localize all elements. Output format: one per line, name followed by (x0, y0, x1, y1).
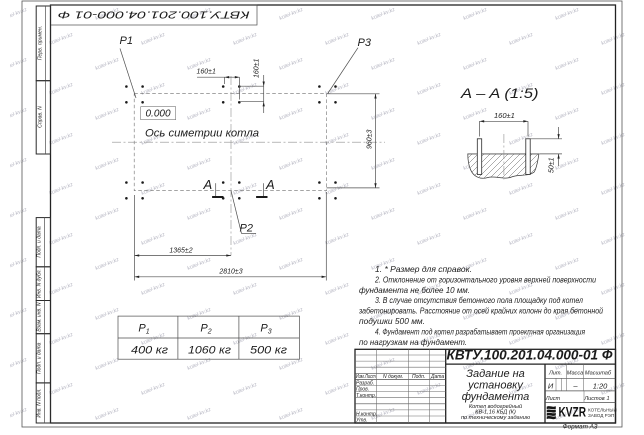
svg-text:160±1: 160±1 (254, 58, 261, 78)
svg-text:по техническому заданию: по техническому заданию (461, 415, 531, 421)
svg-text:Разраб.: Разраб. (356, 381, 374, 387)
svg-text:400 кг: 400 кг (131, 345, 169, 357)
svg-text:Листов: Листов (583, 396, 604, 402)
svg-text:Утв.: Утв. (356, 417, 367, 423)
svg-text:500 кг: 500 кг (250, 345, 288, 357)
svg-text:Ось симетрии котла: Ось симетрии котла (145, 128, 259, 140)
svg-text:Лист: Лист (545, 396, 561, 402)
svg-text:Подп. и дата: Подп. и дата (37, 226, 43, 258)
svg-text:A: A (265, 177, 275, 192)
svg-text:установку: установку (467, 380, 524, 392)
svg-text:Изм.Лист: Изм.Лист (356, 374, 376, 380)
svg-text:Справ. N: Справ. N (38, 106, 44, 128)
svg-text:подушки 500 мм.: подушки 500 мм. (359, 316, 425, 326)
svg-text:1: 1 (606, 396, 609, 402)
svg-text:Подп. и дата: Подп. и дата (37, 342, 43, 374)
svg-text:Пров.: Пров. (356, 387, 369, 393)
svg-text:Масса: Масса (567, 371, 584, 377)
svg-text:50±1: 50±1 (549, 157, 556, 173)
svg-text:Формат А3: Формат А3 (563, 424, 598, 430)
svg-text:1365±2: 1365±2 (169, 248, 192, 255)
svg-text:Перв. примен.: Перв. примен. (38, 26, 44, 60)
svg-text:Подп.: Подп. (412, 374, 425, 380)
svg-text:P1: P1 (120, 35, 133, 47)
svg-text:960±3: 960±3 (367, 129, 374, 149)
svg-text:–: – (572, 381, 578, 390)
svg-text:забетонировать. Расстояние от: забетонировать. Расстояние от осей крайн… (358, 306, 603, 316)
svg-text:Взам. инв. N: Взам. инв. N (37, 302, 43, 332)
svg-text:ЗАВОД РЭП: ЗАВОД РЭП (588, 413, 614, 418)
svg-text:3. В случае отсутствия бетонно: 3. В случае отсутствия бетонного пола пл… (375, 295, 583, 305)
svg-text:Т.контр.: Т.контр. (356, 393, 376, 399)
svg-text:фундамента: фундамента (462, 391, 530, 403)
svg-text:Задание на: Задание на (466, 368, 525, 380)
svg-text:KVZR: KVZR (559, 405, 587, 420)
svg-text:2810±3: 2810±3 (218, 269, 242, 276)
svg-text:И: И (548, 381, 554, 390)
svg-text:0.000: 0.000 (145, 109, 170, 120)
svg-text:КВТУ.100.201.04.000-01 Ф: КВТУ.100.201.04.000-01 Ф (447, 348, 614, 364)
svg-text:160±1: 160±1 (494, 111, 515, 120)
svg-text:P3: P3 (358, 37, 372, 49)
svg-text:A: A (203, 177, 213, 192)
svg-text:Н.контр.: Н.контр. (356, 411, 377, 417)
svg-text:Дата: Дата (430, 374, 444, 380)
svg-text:КОТЕЛЬНЫЙ: КОТЕЛЬНЫЙ (588, 406, 617, 413)
svg-text:A – A (1:5): A – A (1:5) (460, 86, 539, 101)
svg-text:2. Отклонение от горизонтально: 2. Отклонение от горизонтального уровня … (374, 274, 596, 284)
svg-text:160±1: 160±1 (197, 69, 217, 76)
svg-text:N докум.: N докум. (383, 374, 403, 380)
svg-text:фундамента не более 10 мм.: фундамента не более 10 мм. (359, 285, 470, 295)
svg-text:1. * Размер для справок.: 1. * Размер для справок. (375, 264, 472, 274)
svg-text:1:20: 1:20 (593, 381, 608, 390)
svg-text:Инв. N дубл.: Инв. N дубл. (37, 269, 43, 298)
svg-text:Лит.: Лит. (548, 371, 562, 377)
svg-text:Инв. N подл.: Инв. N подл. (37, 388, 43, 417)
svg-text:4. Фундамент под котел разраба: 4. Фундамент под котел разрабатывает про… (375, 326, 585, 336)
svg-text:КВТУ.100.201.04.000-01 Ф: КВТУ.100.201.04.000-01 Ф (58, 8, 250, 19)
svg-text:1060 кг: 1060 кг (188, 345, 232, 357)
svg-text:Масштаб: Масштаб (585, 371, 612, 377)
svg-text:по нагрузкам на фундамент.: по нагрузкам на фундамент. (359, 337, 467, 347)
